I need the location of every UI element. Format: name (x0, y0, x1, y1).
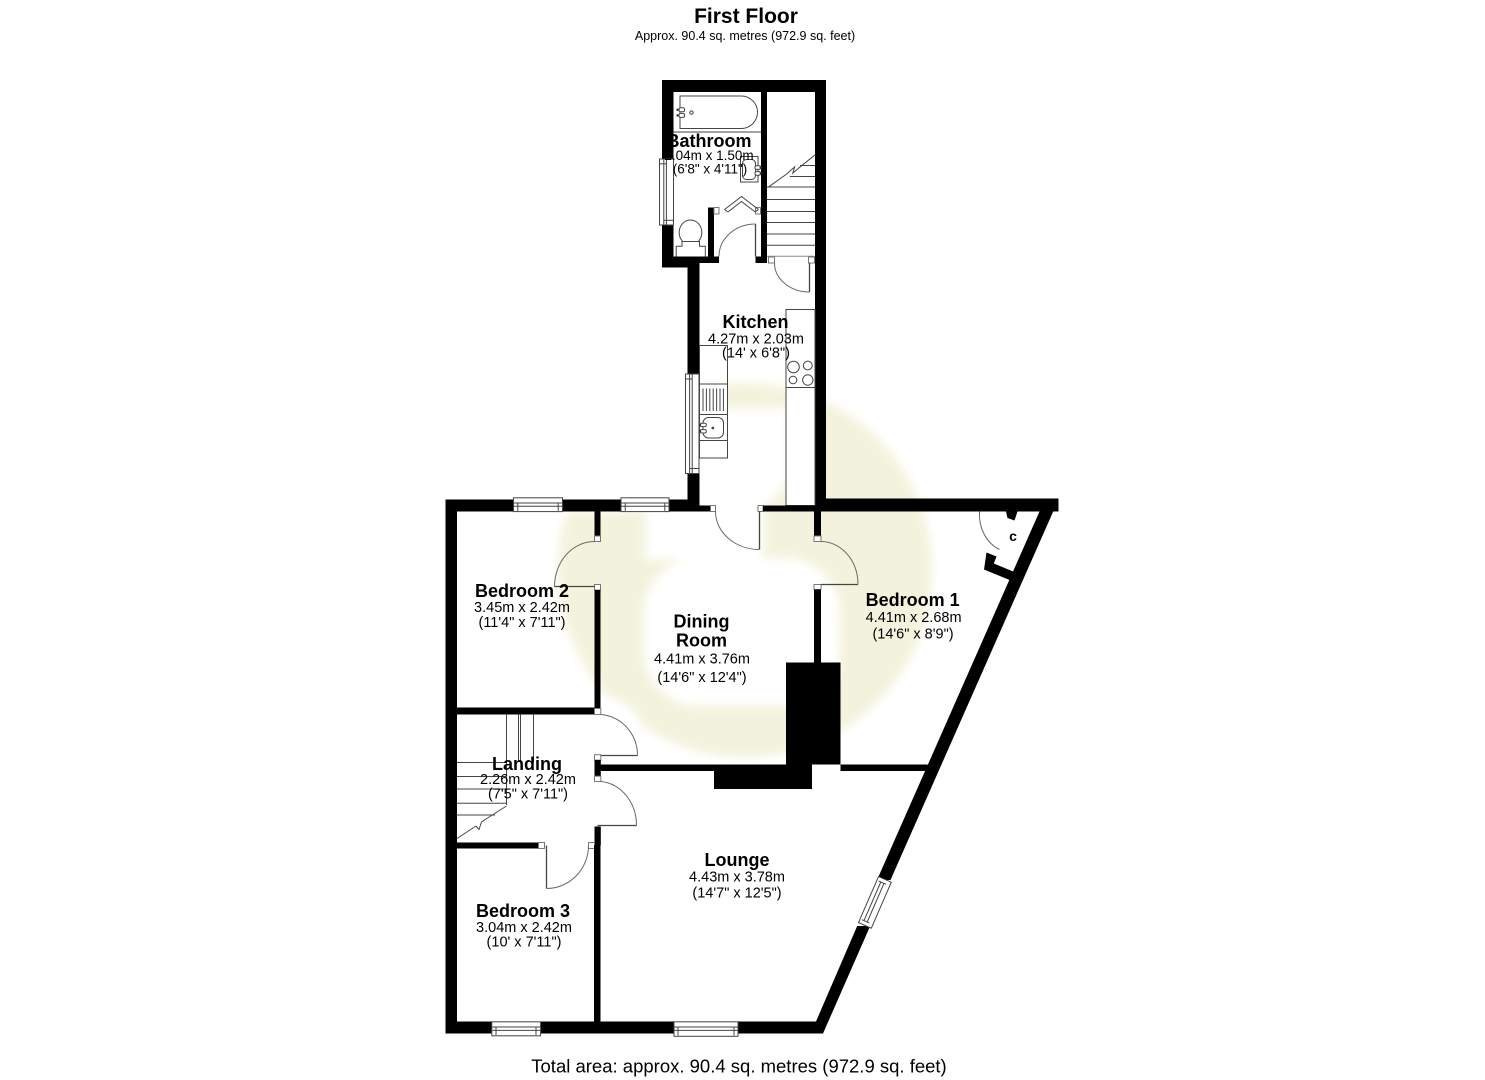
svg-text:Bedroom 1: Bedroom 1 (866, 590, 960, 610)
svg-text:Bedroom 3: Bedroom 3 (476, 901, 570, 921)
svg-text:c: c (1009, 528, 1017, 544)
svg-text:(14'6" x 8'9"): (14'6" x 8'9") (872, 627, 953, 643)
svg-text:Room: Room (676, 631, 727, 651)
svg-text:Dining: Dining (674, 612, 730, 632)
svg-text:(14'6" x 12'4"): (14'6" x 12'4") (657, 670, 746, 686)
svg-text:Bedroom 2: Bedroom 2 (475, 581, 569, 601)
svg-text:(10' x 7'11"): (10' x 7'11") (487, 935, 562, 951)
svg-text:4.41m x 3.76m: 4.41m x 3.76m (654, 652, 750, 668)
svg-text:(14'7" x 12'5"): (14'7" x 12'5") (692, 886, 781, 902)
svg-text:Kitchen: Kitchen (722, 312, 788, 332)
svg-text:(11'4" x 7'11"): (11'4" x 7'11") (478, 615, 565, 631)
svg-text:Landing: Landing (492, 754, 562, 774)
svg-text:3.45m x 2.42m: 3.45m x 2.42m (474, 600, 570, 616)
svg-text:Approx. 90.4 sq. metres (972.9: Approx. 90.4 sq. metres (972.9 sq. feet) (635, 29, 855, 43)
svg-text:First Floor: First Floor (694, 5, 798, 28)
svg-text:Total area: approx. 90.4 sq. m: Total area: approx. 90.4 sq. metres (972… (531, 1056, 946, 1077)
svg-text:(7'5" x 7'11"): (7'5" x 7'11") (488, 787, 568, 803)
svg-text:Lounge: Lounge (705, 850, 770, 870)
svg-text:4.43m x 3.78m: 4.43m x 3.78m (689, 870, 785, 886)
svg-text:4.41m x 2.68m: 4.41m x 2.68m (866, 610, 962, 626)
svg-text:(6'8" x 4'11"): (6'8" x 4'11") (673, 162, 748, 177)
svg-text:(14' x 6'8"): (14' x 6'8") (722, 346, 790, 362)
